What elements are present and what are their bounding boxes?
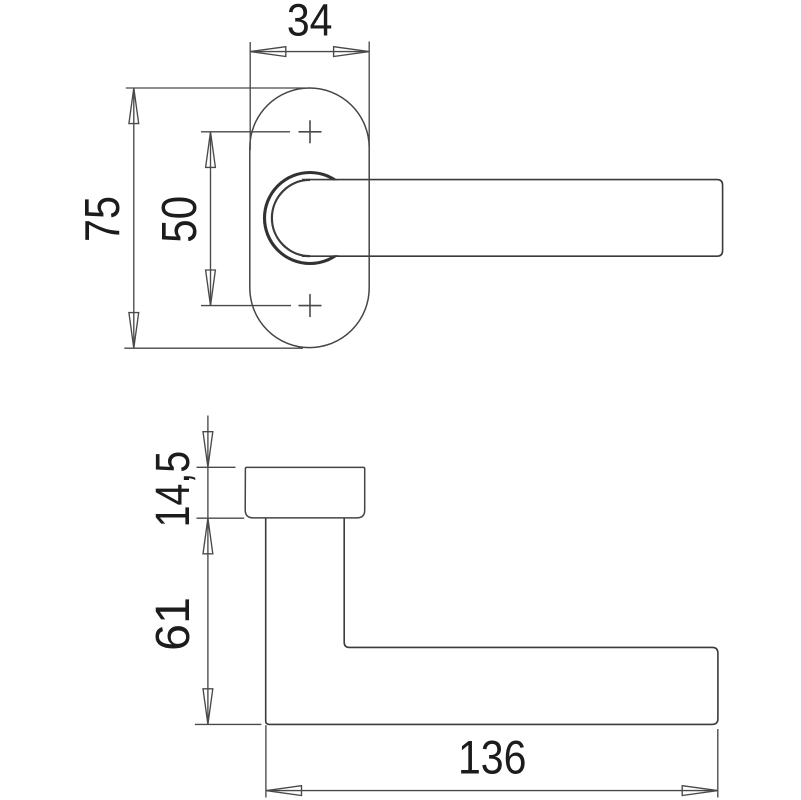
svg-text:75: 75 xyxy=(76,196,130,242)
svg-text:14,5: 14,5 xyxy=(146,451,200,527)
svg-text:61: 61 xyxy=(146,597,200,651)
svg-text:50: 50 xyxy=(153,196,207,243)
svg-text:34: 34 xyxy=(287,0,333,45)
svg-text:136: 136 xyxy=(458,731,527,784)
